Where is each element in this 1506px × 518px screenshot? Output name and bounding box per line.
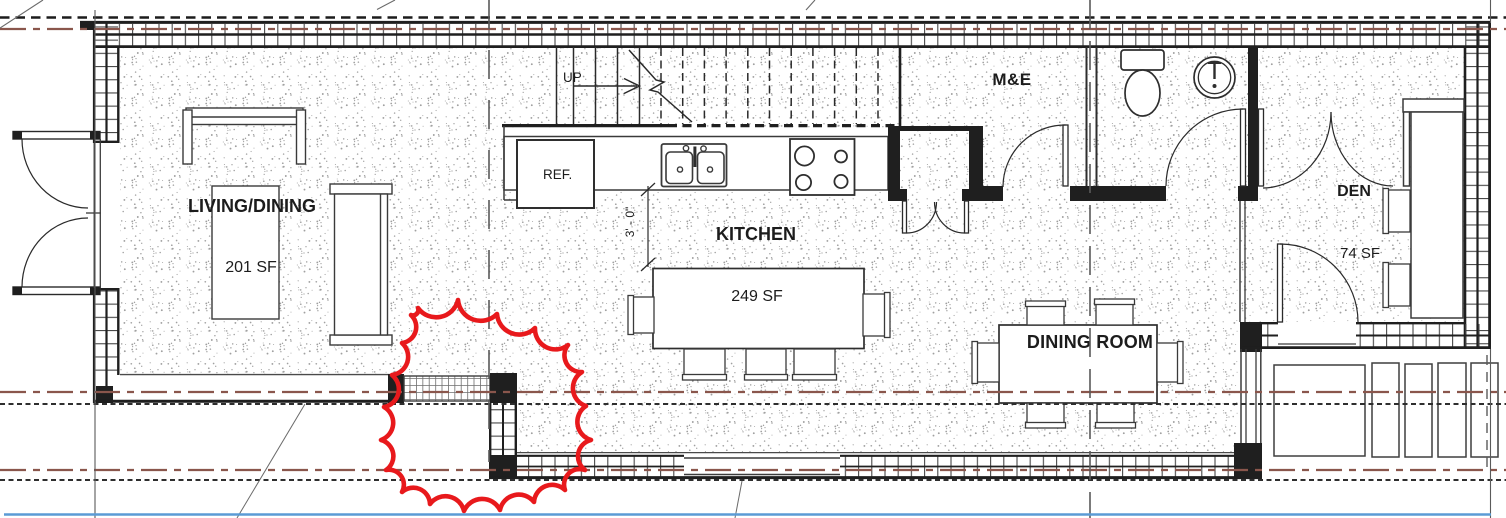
- svg-text:249 SF: 249 SF: [731, 288, 783, 305]
- svg-text:M&E: M&E: [992, 70, 1031, 89]
- svg-text:3' - 0": 3' - 0": [623, 207, 637, 238]
- svg-text:KITCHEN: KITCHEN: [716, 224, 796, 244]
- svg-text:LIVING/DINING: LIVING/DINING: [188, 196, 316, 216]
- svg-text:74 SF: 74 SF: [1340, 245, 1380, 262]
- svg-text:DEN: DEN: [1337, 183, 1371, 200]
- svg-text:201 SF: 201 SF: [225, 259, 277, 276]
- svg-text:REF.: REF.: [543, 167, 572, 182]
- svg-text:UP: UP: [563, 70, 582, 85]
